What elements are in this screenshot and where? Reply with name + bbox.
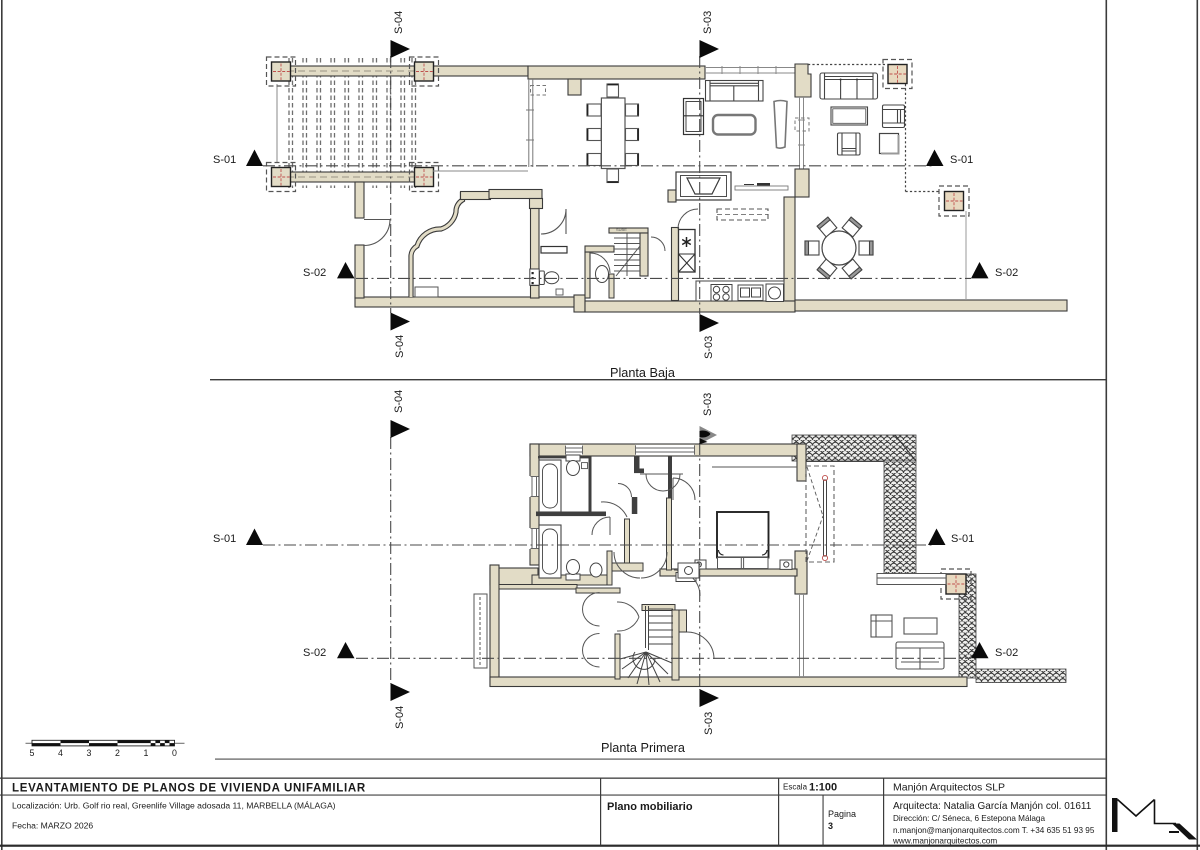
- svg-text:S-02: S-02: [995, 647, 1018, 659]
- svg-text:S-01: S-01: [950, 154, 973, 166]
- svg-text:S-04: S-04: [394, 335, 406, 358]
- svg-text:S-01: S-01: [213, 533, 236, 545]
- svg-text:S-03: S-03: [702, 393, 714, 416]
- svg-text:Planta Baja: Planta Baja: [610, 366, 676, 380]
- svg-text:S-02: S-02: [995, 267, 1018, 279]
- svg-text:S-02: S-02: [303, 267, 326, 279]
- svg-text:S-04: S-04: [393, 11, 405, 34]
- svg-text:LEVANTAMIENTO DE PLANOS DE VIV: LEVANTAMIENTO DE PLANOS DE VIVIENDA UNIF…: [12, 783, 366, 795]
- svg-text:S-03: S-03: [703, 336, 715, 359]
- svg-text:SUBE: SUBE: [616, 227, 627, 232]
- svg-text:1:100: 1:100: [809, 782, 837, 794]
- svg-text:3: 3: [87, 748, 92, 758]
- svg-text:Pagina: Pagina: [828, 809, 856, 819]
- svg-text:Dirección: C/ Séneca, 6 Estepo: Dirección: C/ Séneca, 6 Estepona Málaga: [893, 814, 1045, 823]
- svg-text:Arquitecta: Natalia García Man: Arquitecta: Natalia García Manjón col. 0…: [893, 801, 1092, 812]
- svg-text:5: 5: [30, 748, 35, 758]
- svg-text:Fecha: MARZO 2026: Fecha: MARZO 2026: [12, 821, 93, 831]
- svg-text:Manjón Arquitectos SLP: Manjón Arquitectos SLP: [893, 782, 1005, 794]
- svg-text:0: 0: [172, 748, 177, 758]
- svg-text:S-04: S-04: [393, 390, 405, 413]
- svg-text:Planta Primera: Planta Primera: [601, 741, 686, 755]
- svg-text:www.manjonarquitectos.com: www.manjonarquitectos.com: [892, 837, 997, 846]
- svg-text:4: 4: [58, 748, 63, 758]
- svg-text:S-02: S-02: [303, 647, 326, 659]
- svg-text:S-01: S-01: [213, 154, 236, 166]
- svg-text:Localización: Urb. Golf rio r: Localización: Urb. Golf rio real, Greenl…: [12, 801, 336, 811]
- svg-text:2: 2: [115, 748, 120, 758]
- svg-text:S-03: S-03: [702, 11, 714, 34]
- svg-text:n.manjon@manjonarquitectos.com: n.manjon@manjonarquitectos.com T. +34 63…: [893, 826, 1095, 835]
- svg-text:Escala: Escala: [783, 783, 808, 792]
- svg-text:1: 1: [144, 748, 149, 758]
- svg-text:Plano mobiliario: Plano mobiliario: [607, 801, 693, 813]
- svg-text:S-01: S-01: [951, 533, 974, 545]
- svg-text:S-04: S-04: [394, 706, 406, 729]
- svg-text:S-03: S-03: [703, 712, 715, 735]
- svg-text:3: 3: [828, 821, 833, 831]
